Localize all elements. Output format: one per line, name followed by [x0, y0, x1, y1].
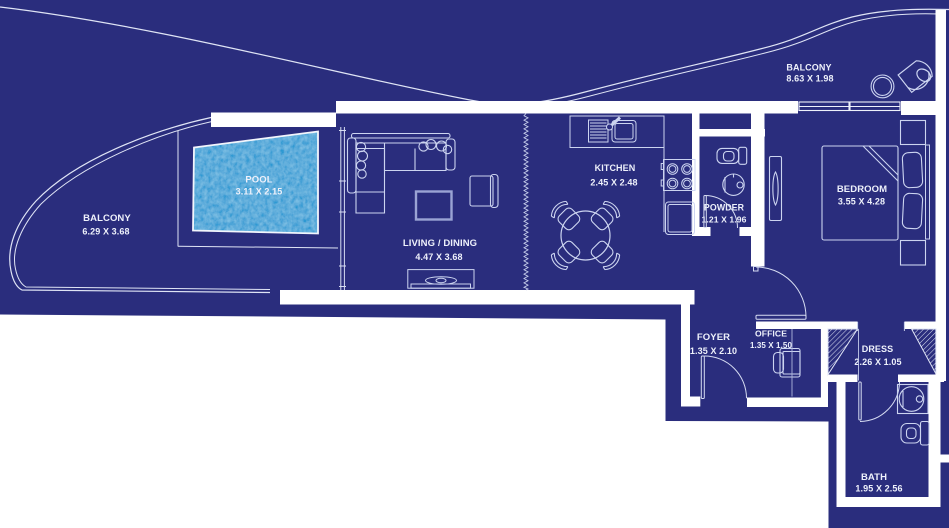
svg-text:3.55 X 4.28: 3.55 X 4.28 [838, 197, 885, 207]
svg-text:6.29 X 3.68: 6.29 X 3.68 [82, 227, 129, 237]
svg-text:2.45 X 2.48: 2.45 X 2.48 [590, 178, 637, 188]
svg-text:POWDER: POWDER [704, 203, 745, 213]
svg-text:4.47 X 3.68: 4.47 X 3.68 [415, 252, 462, 262]
svg-text:FOYER: FOYER [697, 332, 730, 343]
svg-text:OFFICE: OFFICE [755, 329, 787, 339]
svg-text:LIVING / DINING: LIVING / DINING [403, 238, 477, 249]
svg-text:8.63 X 1.98: 8.63 X 1.98 [786, 74, 833, 84]
svg-text:3.11 X 2.15: 3.11 X 2.15 [236, 187, 283, 197]
svg-text:POOL: POOL [245, 175, 272, 186]
svg-text:BALCONY: BALCONY [83, 213, 131, 224]
svg-text:1.21 X 1.96: 1.21 X 1.96 [701, 215, 746, 225]
svg-text:KITCHEN: KITCHEN [595, 163, 636, 173]
svg-text:2.26 X 1.05: 2.26 X 1.05 [854, 357, 901, 367]
svg-text:1.35 X 2.10: 1.35 X 2.10 [690, 346, 737, 356]
svg-text:BEDROOM: BEDROOM [837, 184, 887, 195]
svg-text:1.95 X 2.56: 1.95 X 2.56 [855, 484, 902, 494]
svg-text:BATH: BATH [861, 472, 887, 483]
svg-text:DRESS: DRESS [862, 344, 894, 354]
svg-text:BALCONY: BALCONY [786, 63, 831, 73]
